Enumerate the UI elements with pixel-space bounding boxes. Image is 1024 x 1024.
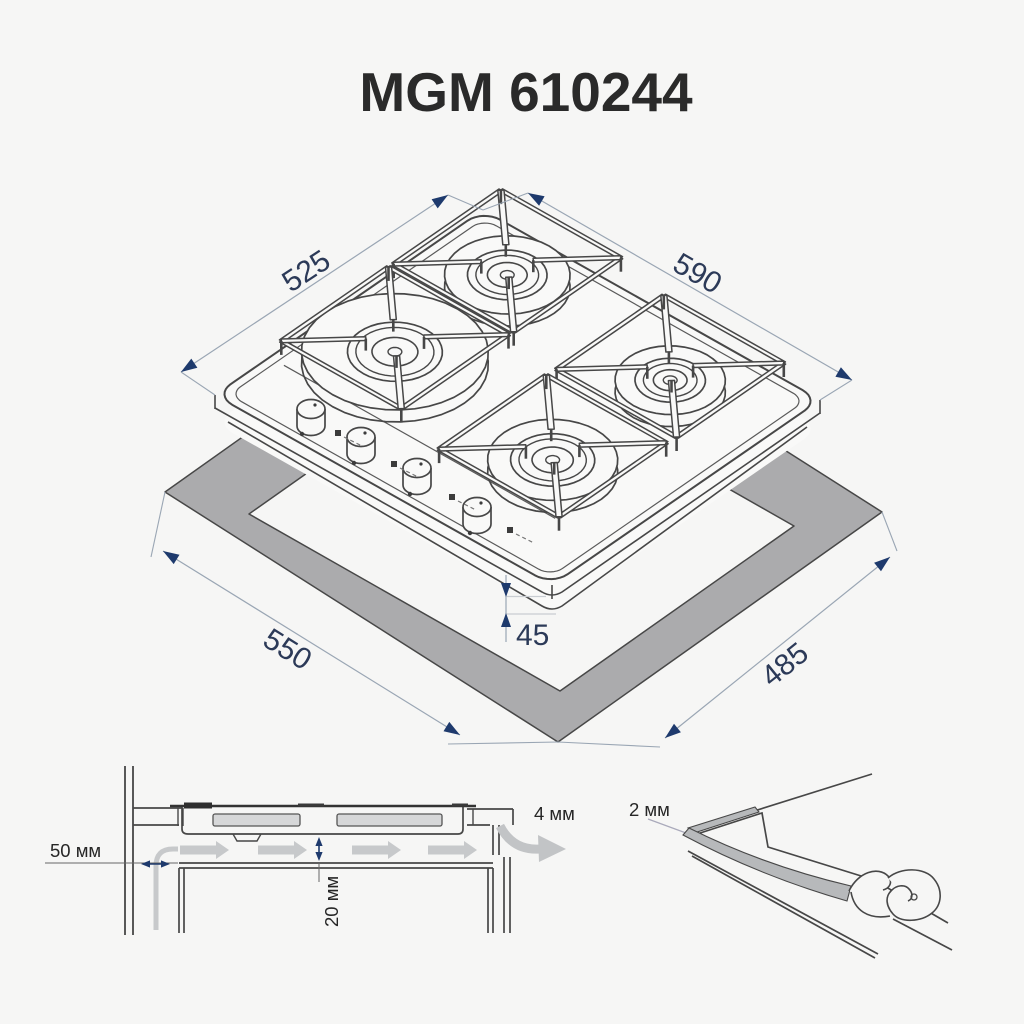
svg-text:MGM 610244: MGM 610244	[359, 61, 693, 123]
svg-text:4 мм: 4 мм	[534, 803, 575, 824]
svg-text:45: 45	[516, 619, 549, 652]
svg-text:20 мм: 20 мм	[321, 876, 342, 927]
svg-text:2 мм: 2 мм	[629, 799, 670, 820]
svg-text:50 мм: 50 мм	[50, 840, 101, 861]
